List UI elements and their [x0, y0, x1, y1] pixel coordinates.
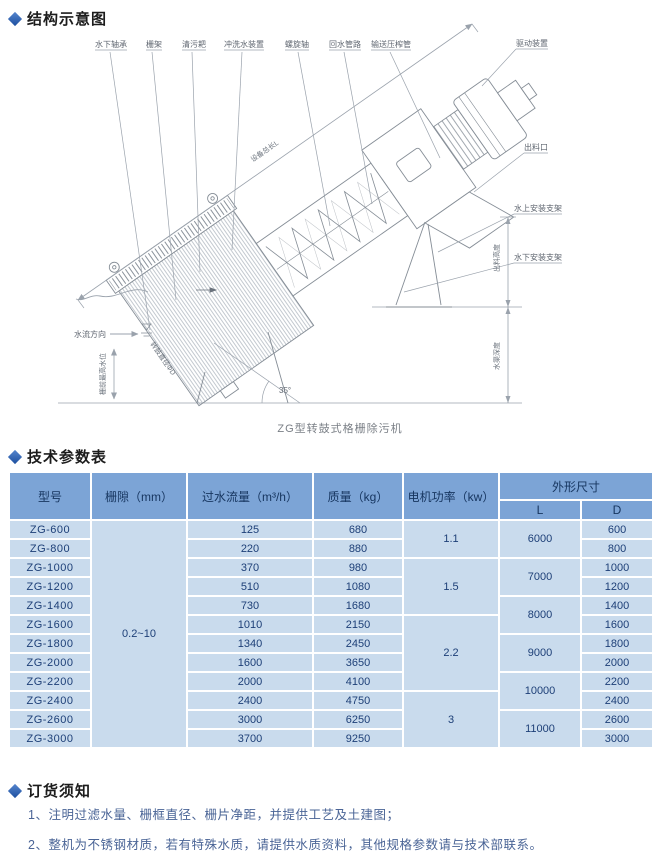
cell-D: 2600: [581, 710, 653, 729]
cell-weight: 1080: [313, 577, 403, 596]
label-screen-frame: 栅架: [146, 39, 162, 49]
cell-D: 1200: [581, 577, 653, 596]
cell-L: 8000: [499, 596, 581, 634]
label-cleaning-rake: 清污耙: [182, 39, 206, 49]
cell-D: 800: [581, 539, 653, 558]
cell-model: ZG-2600: [9, 710, 91, 729]
cell-D: 1800: [581, 634, 653, 653]
catalog-page: 水下轴承 栅架 清污耙 冲洗水装置 螺旋轴 回水管路 输送压榨管 驱动装置: [0, 0, 660, 860]
above-water-bracket-frame: [386, 222, 452, 307]
cell-L: 11000: [499, 710, 581, 748]
cell-L: 10000: [499, 672, 581, 710]
label-return-pipe: 回水管路: [329, 39, 361, 49]
cell-model: ZG-1200: [9, 577, 91, 596]
header-power: 电机功率（kw）: [403, 472, 499, 520]
table-row: ZG-600 0.2~10 125 680 1.1 6000 600: [9, 520, 653, 539]
water-level-dimension: 栅前最高水位: [98, 349, 114, 399]
cell-flow: 730: [187, 596, 313, 615]
header-dims: 外形尺寸: [499, 472, 653, 500]
cell-D: 1000: [581, 558, 653, 577]
diamond-icon: [8, 11, 22, 25]
cell-flow: 2400: [187, 691, 313, 710]
cell-gap: 0.2~10: [91, 520, 187, 748]
flow-direction-group: 水流方向: [74, 324, 152, 339]
order-note-2: 2、整机为不锈钢材质，若有特殊水质，请提供水质资料，其他规格参数请与技术部联系。: [28, 834, 638, 853]
right-dimensions: 出料高度 水渠深度: [492, 217, 516, 403]
label-channel-depth: 水渠深度: [492, 342, 501, 370]
cell-D: 1600: [581, 615, 653, 634]
machine-assembly: [100, 8, 587, 429]
cell-weight: 680: [313, 520, 403, 539]
cell-D: 2200: [581, 672, 653, 691]
order-note-1: 1、注明过滤水量、栅框直径、栅片净距，并提供工艺及土建图；: [28, 804, 638, 823]
cell-flow: 1600: [187, 653, 313, 672]
label-discharge-height: 出料高度: [492, 244, 501, 272]
header-model: 型号: [9, 472, 91, 520]
cell-model: ZG-1400: [9, 596, 91, 615]
cell-weight: 4100: [313, 672, 403, 691]
order-title-text: 订货须知: [27, 780, 91, 801]
diagram-caption: ZG型转鼓式格栅除污机: [277, 421, 402, 435]
cell-L: 6000: [499, 520, 581, 558]
cell-flow: 125: [187, 520, 313, 539]
label-under-water-bracket: 水下安装支架: [514, 252, 562, 262]
label-flow-direction: 水流方向: [74, 329, 106, 339]
section-parameters-title: 技术参数表: [10, 446, 107, 467]
cell-D: 2000: [581, 653, 653, 672]
cell-power: 2.2: [403, 615, 499, 691]
cell-weight: 4750: [313, 691, 403, 710]
cell-model: ZG-2400: [9, 691, 91, 710]
header-gap: 栅隙（mm）: [91, 472, 187, 520]
cell-model: ZG-2200: [9, 672, 91, 691]
parameters-table: 型号 栅隙（mm） 过水流量（m³/h） 质量（kg） 电机功率（kw） 外形尺…: [8, 471, 654, 749]
diamond-icon: [8, 449, 22, 463]
cell-model: ZG-3000: [9, 729, 91, 748]
header-dim-D: D: [581, 500, 653, 520]
cell-weight: 880: [313, 539, 403, 558]
structure-title-text: 结构示意图: [27, 8, 107, 29]
label-press-pipe: 输送压榨管: [371, 39, 411, 49]
cell-model: ZG-2000: [9, 653, 91, 672]
cell-model: ZG-1800: [9, 634, 91, 653]
cell-model: ZG-800: [9, 539, 91, 558]
label-max-water-level: 栅前最高水位: [98, 353, 107, 395]
header-dim-L: L: [499, 500, 581, 520]
order-notes: 1、注明过滤水量、栅框直径、栅片净距，并提供工艺及土建图； 2、整机为不锈钢材质…: [28, 804, 638, 864]
label-outlet: 出料口: [524, 142, 548, 152]
cell-L: 7000: [499, 558, 581, 596]
label-drive-device: 驱动装置: [516, 38, 548, 48]
cell-flow: 3700: [187, 729, 313, 748]
drive-label-group: 驱动装置: [482, 38, 548, 86]
cell-flow: 1340: [187, 634, 313, 653]
cell-weight: 3650: [313, 653, 403, 672]
label-above-water-bracket: 水上安装支架: [514, 203, 562, 213]
structure-diagram: 水下轴承 栅架 清污耙 冲洗水装置 螺旋轴 回水管路 输送压榨管 驱动装置: [0, 0, 660, 448]
label-total-length: 设备总长L: [249, 138, 280, 164]
cell-flow: 3000: [187, 710, 313, 729]
cell-D: 600: [581, 520, 653, 539]
cell-weight: 980: [313, 558, 403, 577]
section-order-title: 订货须知: [10, 780, 91, 801]
cell-flow: 510: [187, 577, 313, 596]
cell-power: 1.1: [403, 520, 499, 558]
section-structure-title: 结构示意图: [10, 8, 107, 29]
cell-weight: 2450: [313, 634, 403, 653]
cell-D: 2400: [581, 691, 653, 710]
cell-flow: 2000: [187, 672, 313, 691]
table-body: ZG-600 0.2~10 125 680 1.1 6000 600 ZG-80…: [9, 520, 653, 748]
parameters-title-text: 技术参数表: [27, 446, 107, 467]
cell-L: 9000: [499, 634, 581, 672]
cell-D: 3000: [581, 729, 653, 748]
cell-flow: 220: [187, 539, 313, 558]
cell-D: 1400: [581, 596, 653, 615]
header-flow: 过水流量（m³/h）: [187, 472, 313, 520]
cell-model: ZG-1000: [9, 558, 91, 577]
table-header: 型号 栅隙（mm） 过水流量（m³/h） 质量（kg） 电机功率（kw） 外形尺…: [9, 472, 653, 520]
label-wash-device: 冲洗水装置: [224, 39, 264, 49]
cell-flow: 370: [187, 558, 313, 577]
label-screw-shaft: 螺旋轴: [285, 39, 309, 49]
cell-power: 3: [403, 691, 499, 748]
cell-model: ZG-1600: [9, 615, 91, 634]
label-underwater-bearing: 水下轴承: [95, 39, 127, 49]
cell-flow: 1010: [187, 615, 313, 634]
cell-weight: 2150: [313, 615, 403, 634]
cell-weight: 6250: [313, 710, 403, 729]
cell-weight: 9250: [313, 729, 403, 748]
header-weight: 质量（kg）: [313, 472, 403, 520]
label-angle: 35°: [279, 386, 291, 395]
cell-power: 1.5: [403, 558, 499, 615]
cell-model: ZG-600: [9, 520, 91, 539]
diamond-icon: [8, 783, 22, 797]
cell-weight: 1680: [313, 596, 403, 615]
